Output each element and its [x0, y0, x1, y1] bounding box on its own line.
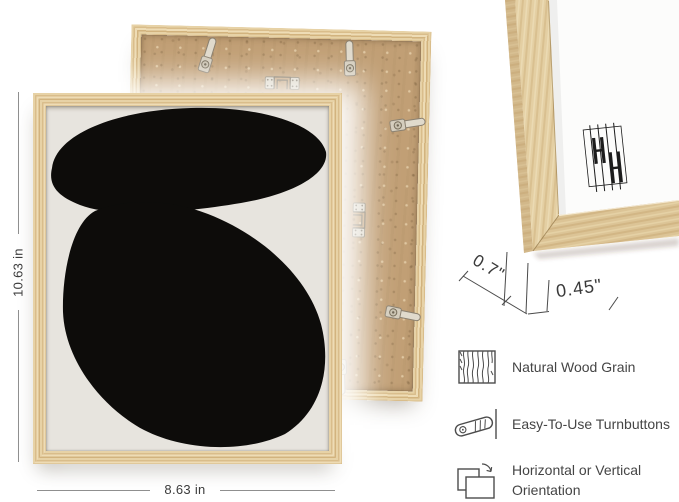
- abstract-artwork-shapes: [46, 106, 329, 451]
- depth-dimension-label: 0.7": [470, 250, 509, 284]
- feature-label: Horizontal or Vertical Orientation: [512, 460, 672, 501]
- sawtooth-hanger: [346, 202, 371, 239]
- art-blob-bottom: [63, 202, 325, 447]
- height-dimension-label: 10.63 in: [11, 241, 26, 305]
- front-frame-wood-edge-right: [329, 93, 342, 464]
- abstract-artwork: [46, 106, 329, 451]
- front-frame-wood-edge-left: [33, 93, 46, 464]
- feature-row-orientation: Horizontal or Vertical Orientation: [452, 460, 672, 501]
- front-frame-wood-edge-bottom: [33, 451, 342, 464]
- turnbutton-icon: [452, 406, 502, 442]
- wood-grain-icon: [452, 350, 502, 384]
- face-width-dimension-label: 0.45": [555, 275, 604, 301]
- height-dimension-line-upper: [18, 92, 19, 234]
- frame-front-view: [33, 93, 342, 464]
- art-blob-top: [51, 108, 326, 213]
- height-dimension-line-lower: [18, 310, 19, 462]
- sawtooth-hanger: [264, 71, 301, 96]
- width-dimension-label: 8.63 in: [152, 482, 218, 497]
- product-infographic: 10.63 in 8.63 in: [0, 0, 679, 502]
- width-dimension-line-left: [37, 490, 150, 491]
- turnbutton-hardware: [340, 39, 359, 79]
- width-dimension-line-right: [220, 490, 335, 491]
- orientation-icon: [452, 460, 502, 500]
- feature-label: Natural Wood Grain: [512, 357, 672, 377]
- front-frame-wood-edge-top: [33, 93, 342, 106]
- frame-corner-detail: 0.7" 0.45": [430, 0, 679, 330]
- feature-label: Easy-To-Use Turnbuttons: [512, 414, 672, 434]
- feature-row-wood-grain: Natural Wood Grain: [452, 350, 672, 384]
- frame-corner-artboard: [549, 0, 679, 216]
- feature-row-turnbuttons: Easy-To-Use Turnbuttons: [452, 406, 672, 442]
